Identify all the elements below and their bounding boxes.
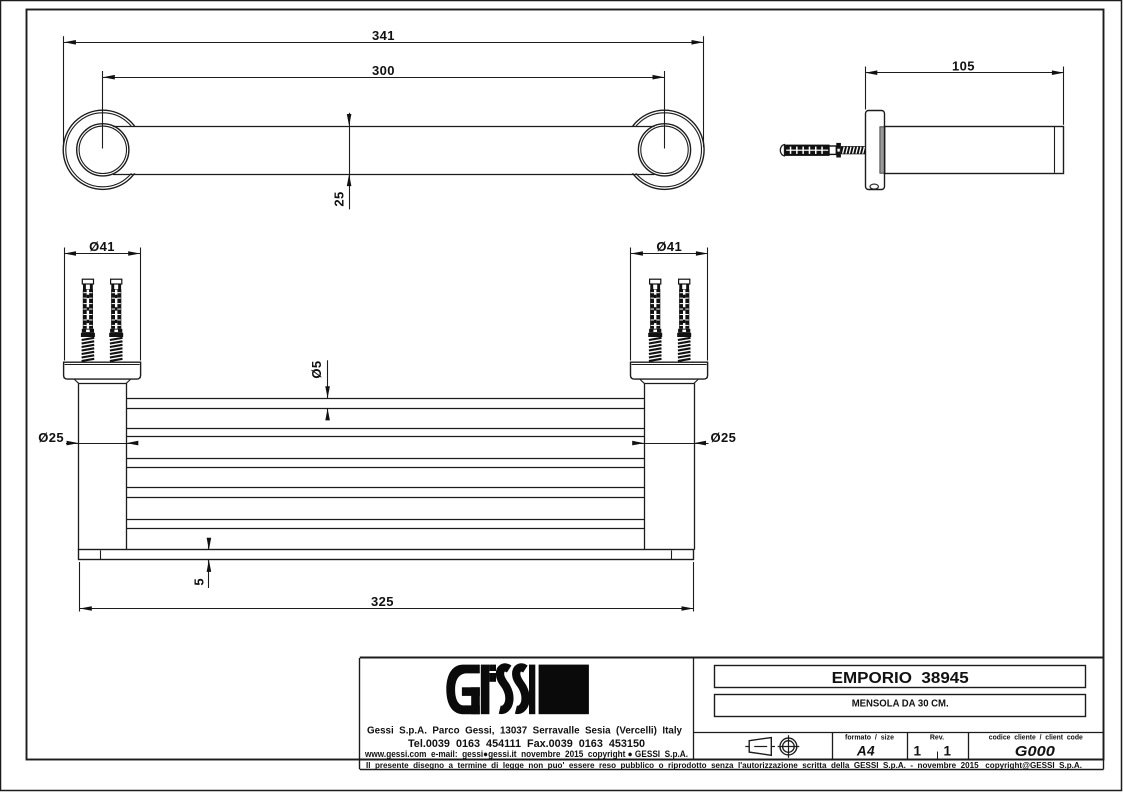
svg-text:G000: G000 — [1015, 744, 1055, 760]
svg-text:25: 25 — [332, 191, 347, 206]
svg-text:Ø25: Ø25 — [38, 430, 64, 445]
svg-text:formato / size: formato / size — [845, 734, 894, 741]
svg-text:Il presente disegno a term: Il presente disegno a termine di legge n… — [366, 761, 1082, 770]
svg-text:105: 105 — [952, 58, 975, 73]
svg-text:EMPORIO 38945: EMPORIO 38945 — [832, 670, 969, 687]
svg-text:5: 5 — [191, 578, 206, 585]
svg-text:Ø25: Ø25 — [711, 430, 737, 445]
svg-text:MENSOLA DA 30 CM.: MENSOLA DA 30 CM. — [852, 698, 949, 710]
svg-text:Rev.: Rev. — [930, 734, 944, 741]
svg-text:Tel.0039 0163 454111 Fax.00: Tel.0039 0163 454111 Fax.0039 0163 45315… — [408, 738, 645, 750]
svg-text:1: 1 — [913, 744, 921, 759]
svg-text:Ø41: Ø41 — [89, 239, 115, 254]
svg-text:Ø41: Ø41 — [656, 239, 682, 254]
svg-text:341: 341 — [372, 28, 395, 43]
svg-text:1: 1 — [943, 744, 951, 759]
svg-text:A4: A4 — [856, 744, 875, 759]
svg-text:325: 325 — [371, 594, 394, 609]
svg-text:Ø5: Ø5 — [309, 360, 324, 378]
svg-text:www.gessi.com e-mail: gessi●: www.gessi.com e-mail: gessi●gessi.it nov… — [364, 749, 688, 759]
svg-text:codice cliente / client co: codice cliente / client code — [989, 734, 1083, 741]
svg-text:Gessi S.p.A. Parco Gessi,: Gessi S.p.A. Parco Gessi, 13037 Serraval… — [367, 724, 682, 736]
svg-text:300: 300 — [372, 63, 395, 78]
